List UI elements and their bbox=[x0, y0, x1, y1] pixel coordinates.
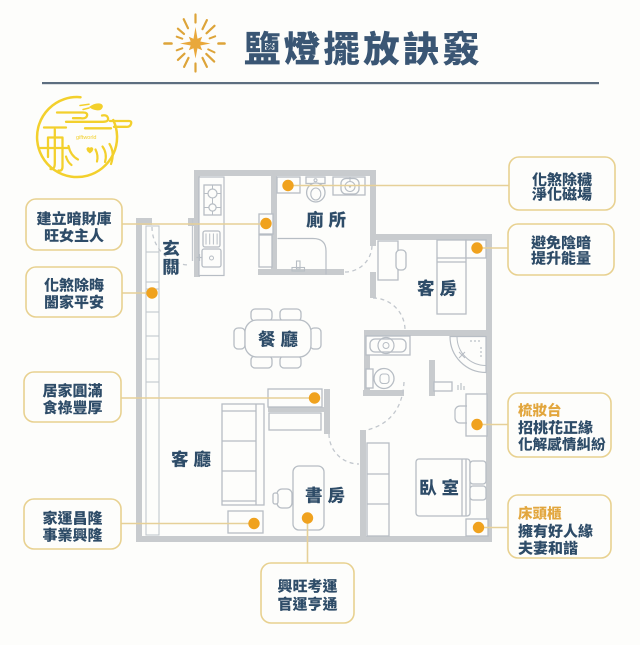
svg-text:giftworld: giftworld bbox=[76, 135, 96, 141]
